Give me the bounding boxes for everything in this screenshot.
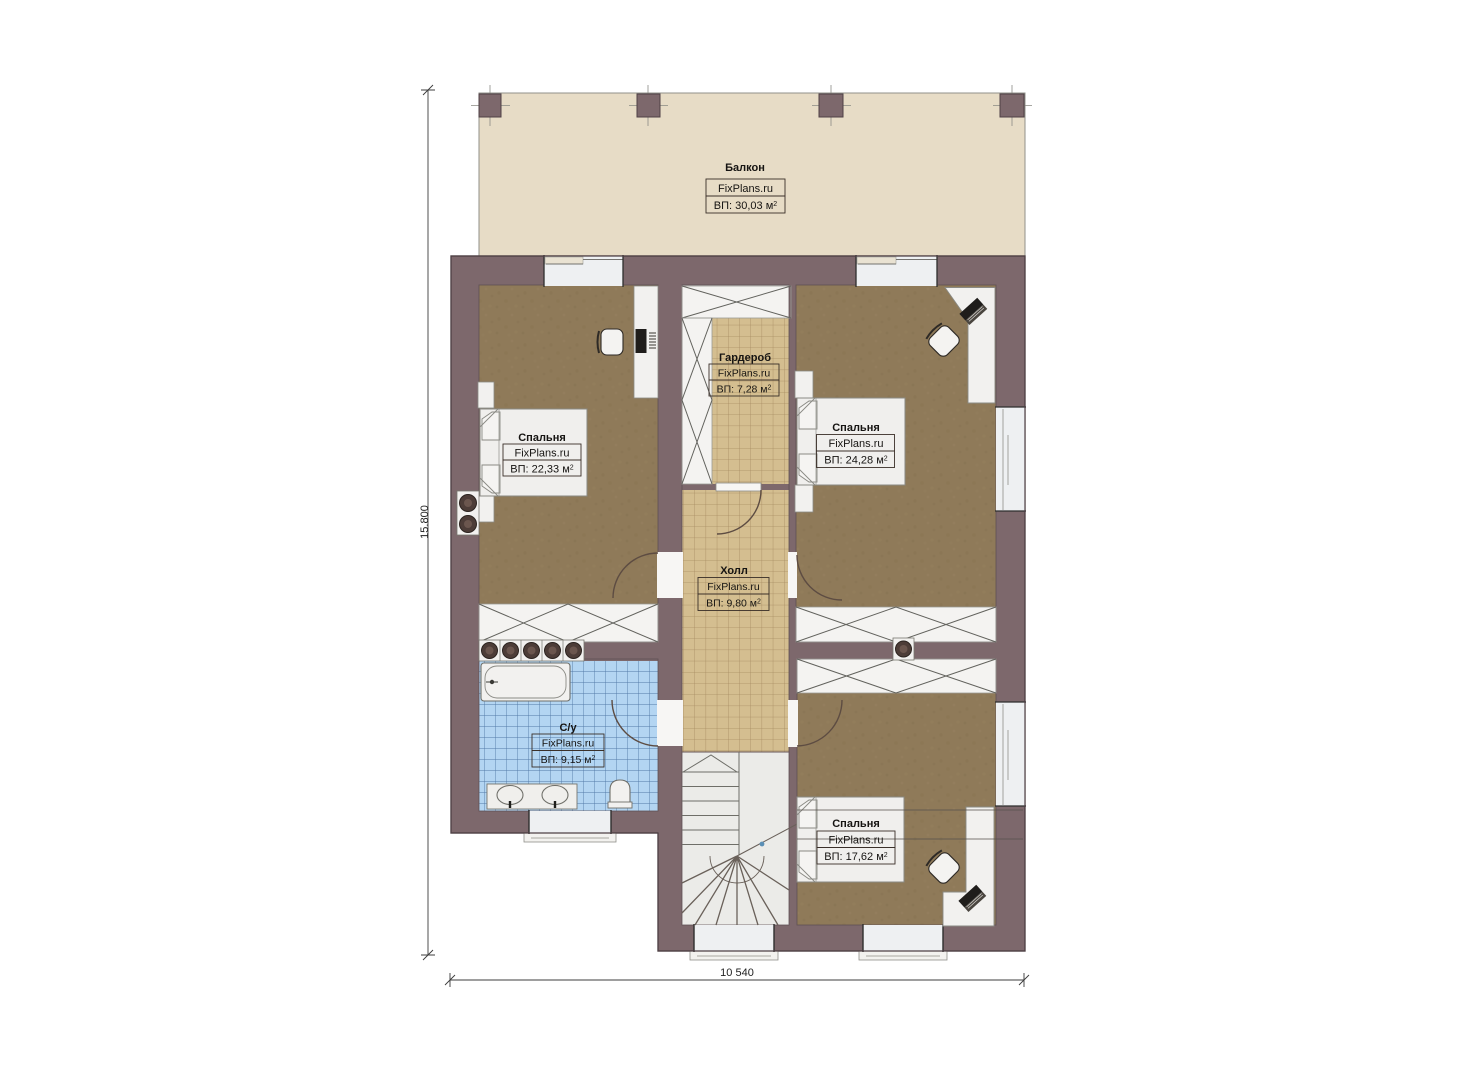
svg-text:FixPlans.ru: FixPlans.ru bbox=[542, 738, 595, 750]
svg-text:FixPlans.ru: FixPlans.ru bbox=[514, 448, 569, 460]
svg-text:ВП: 17,62 м2: ВП: 17,62 м2 bbox=[824, 851, 888, 863]
svg-text:FixPlans.ru: FixPlans.ru bbox=[718, 183, 773, 195]
svg-text:Гардероб: Гардероб bbox=[719, 352, 771, 364]
svg-text:ВП: 9,15 м2: ВП: 9,15 м2 bbox=[541, 754, 596, 766]
svg-text:Холл: Холл bbox=[720, 565, 748, 577]
svg-text:10 540: 10 540 bbox=[720, 967, 754, 979]
svg-text:ВП: 7,28 м2: ВП: 7,28 м2 bbox=[717, 384, 772, 396]
svg-text:Спальня: Спальня bbox=[832, 422, 880, 434]
svg-text:ВП: 9,80 м2: ВП: 9,80 м2 bbox=[706, 598, 761, 610]
svg-text:Спальня: Спальня bbox=[518, 432, 566, 444]
svg-text:15.800: 15.800 bbox=[419, 505, 431, 539]
svg-text:FixPlans.ru: FixPlans.ru bbox=[828, 835, 883, 847]
svg-text:ВП: 30,03 м2: ВП: 30,03 м2 bbox=[714, 200, 778, 212]
svg-text:ВП: 22,33 м2: ВП: 22,33 м2 bbox=[510, 464, 574, 476]
svg-text:FixPlans.ru: FixPlans.ru bbox=[718, 368, 771, 380]
svg-text:FixPlans.ru: FixPlans.ru bbox=[828, 438, 883, 450]
svg-text:Балкон: Балкон bbox=[725, 162, 765, 174]
svg-text:Спальня: Спальня bbox=[832, 818, 880, 830]
svg-text:ВП: 24,28 м2: ВП: 24,28 м2 bbox=[824, 455, 888, 467]
svg-text:С/у: С/у bbox=[559, 722, 577, 734]
svg-text:FixPlans.ru: FixPlans.ru bbox=[707, 581, 760, 593]
